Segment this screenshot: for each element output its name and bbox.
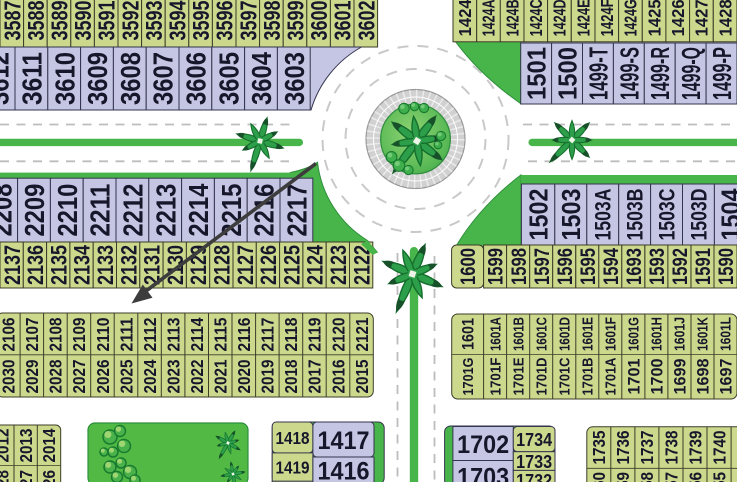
svg-text:1701D: 1701D (534, 357, 551, 395)
svg-text:1701G: 1701G (460, 358, 477, 396)
svg-text:1760: 1760 (589, 472, 609, 482)
svg-text:1700: 1700 (648, 359, 667, 395)
svg-text:1503B: 1503B (623, 189, 648, 241)
svg-text:1732: 1732 (516, 471, 552, 482)
svg-text:1693: 1693 (623, 248, 646, 285)
svg-text:2027: 2027 (16, 470, 36, 482)
svg-text:1592: 1592 (669, 248, 692, 285)
svg-text:1424G: 1424G (621, 0, 641, 36)
svg-text:1424D: 1424D (550, 0, 570, 36)
svg-text:1499-R: 1499-R (645, 47, 675, 100)
svg-text:2017: 2017 (305, 360, 325, 394)
svg-text:3593: 3593 (141, 1, 167, 41)
svg-text:1601L: 1601L (719, 317, 735, 351)
svg-text:1596: 1596 (554, 248, 577, 285)
svg-text:3611: 3611 (16, 52, 47, 105)
svg-text:2128: 2128 (210, 245, 235, 285)
svg-text:1593: 1593 (646, 248, 669, 285)
svg-text:1738: 1738 (661, 430, 681, 464)
svg-text:1735: 1735 (589, 430, 609, 464)
svg-text:3605: 3605 (213, 52, 244, 105)
svg-text:2114: 2114 (187, 317, 207, 351)
svg-text:2023: 2023 (163, 359, 183, 393)
svg-text:2019: 2019 (258, 359, 278, 393)
svg-text:1701: 1701 (625, 359, 644, 395)
svg-text:1501: 1501 (522, 47, 552, 100)
svg-text:2132: 2132 (116, 245, 141, 285)
svg-text:2015: 2015 (352, 359, 372, 393)
svg-text:1756: 1756 (685, 472, 705, 482)
svg-text:1754: 1754 (733, 472, 737, 482)
svg-text:1499-S: 1499-S (614, 47, 644, 100)
svg-text:2028: 2028 (46, 359, 66, 393)
svg-text:1701A: 1701A (603, 357, 620, 395)
svg-text:2115: 2115 (211, 317, 231, 351)
svg-text:1503A: 1503A (591, 188, 616, 240)
svg-text:2025: 2025 (116, 359, 136, 393)
svg-text:1500: 1500 (552, 47, 582, 100)
svg-text:1601F: 1601F (604, 317, 620, 351)
svg-text:3592: 3592 (117, 1, 143, 41)
svg-text:2021: 2021 (211, 359, 231, 393)
svg-text:1499-Q: 1499-Q (676, 47, 706, 100)
svg-text:2130: 2130 (163, 245, 188, 285)
svg-text:1416: 1416 (318, 458, 370, 482)
svg-text:2116: 2116 (234, 317, 254, 351)
svg-text:2135: 2135 (46, 245, 71, 285)
svg-text:1599: 1599 (485, 248, 508, 285)
svg-text:2111: 2111 (116, 317, 136, 351)
svg-text:2110: 2110 (93, 317, 113, 351)
svg-text:2117: 2117 (258, 318, 278, 352)
svg-text:2022: 2022 (187, 359, 207, 393)
svg-text:2118: 2118 (281, 317, 301, 351)
svg-text:2210: 2210 (52, 184, 83, 237)
svg-text:3590: 3590 (70, 1, 96, 41)
svg-text:2012: 2012 (0, 428, 13, 462)
svg-text:1595: 1595 (577, 248, 600, 285)
svg-text:2107: 2107 (22, 318, 42, 352)
svg-text:2214: 2214 (183, 183, 214, 236)
svg-text:1601A: 1601A (488, 317, 504, 351)
svg-text:1594: 1594 (600, 248, 623, 285)
svg-text:1600: 1600 (457, 248, 480, 285)
svg-text:2106: 2106 (0, 317, 19, 351)
svg-text:1424E: 1424E (573, 0, 593, 36)
svg-text:1601D: 1601D (557, 317, 573, 351)
svg-text:1736: 1736 (613, 430, 633, 464)
svg-text:1703: 1703 (457, 464, 509, 482)
svg-text:2029: 2029 (22, 359, 42, 393)
svg-text:1424F: 1424F (597, 0, 617, 36)
svg-text:2120: 2120 (328, 317, 348, 351)
svg-text:3607: 3607 (148, 52, 179, 105)
svg-text:1701F: 1701F (488, 358, 505, 396)
svg-text:1503: 1503 (556, 189, 586, 241)
svg-text:1734: 1734 (516, 430, 552, 450)
svg-text:2123: 2123 (326, 245, 351, 285)
svg-text:2018: 2018 (281, 359, 301, 393)
svg-text:1503C: 1503C (654, 188, 679, 240)
svg-text:1499-P: 1499-P (707, 47, 737, 100)
svg-text:3591: 3591 (94, 1, 120, 41)
svg-text:2013: 2013 (16, 428, 36, 462)
svg-text:2136: 2136 (23, 245, 48, 285)
svg-text:2124: 2124 (303, 245, 328, 285)
svg-text:2121: 2121 (352, 317, 372, 351)
svg-text:3603: 3603 (279, 52, 310, 105)
svg-text:1591: 1591 (692, 248, 715, 285)
svg-text:3587: 3587 (0, 1, 25, 41)
svg-text:1424B: 1424B (502, 0, 522, 36)
svg-text:2212: 2212 (117, 184, 148, 237)
svg-text:1418: 1418 (276, 428, 310, 448)
svg-text:1424A: 1424A (479, 0, 499, 36)
svg-text:2016: 2016 (328, 359, 348, 393)
svg-text:3595: 3595 (188, 1, 214, 41)
svg-text:1417: 1417 (318, 427, 370, 455)
svg-text:1601J: 1601J (673, 317, 689, 351)
svg-text:1737: 1737 (637, 431, 657, 465)
svg-text:1598: 1598 (508, 248, 531, 285)
svg-text:1601C: 1601C (534, 317, 550, 351)
svg-text:2020: 2020 (234, 359, 254, 393)
svg-text:3610: 3610 (49, 52, 80, 105)
svg-text:2137: 2137 (0, 245, 25, 285)
svg-text:3596: 3596 (212, 1, 238, 41)
svg-text:2014: 2014 (39, 428, 59, 462)
svg-text:2108: 2108 (46, 317, 66, 351)
svg-text:2209: 2209 (19, 184, 50, 237)
svg-text:1601B: 1601B (511, 317, 527, 351)
svg-text:1601E: 1601E (581, 317, 597, 351)
svg-text:3589: 3589 (46, 1, 72, 41)
svg-text:3598: 3598 (259, 1, 285, 41)
svg-text:1427: 1427 (692, 0, 712, 36)
svg-text:2109: 2109 (69, 317, 89, 351)
svg-text:1419: 1419 (276, 457, 310, 477)
svg-text:1597: 1597 (531, 248, 554, 285)
svg-text:3604: 3604 (246, 52, 277, 105)
svg-text:3602: 3602 (353, 1, 379, 41)
svg-text:3600: 3600 (306, 1, 332, 41)
svg-text:2126: 2126 (256, 245, 281, 285)
svg-text:1701C: 1701C (557, 357, 574, 395)
svg-text:3594: 3594 (164, 1, 190, 41)
svg-text:1758: 1758 (637, 472, 657, 482)
svg-text:1590: 1590 (715, 248, 737, 285)
svg-text:2208: 2208 (0, 184, 17, 237)
svg-text:1741: 1741 (733, 430, 737, 464)
svg-text:1503D: 1503D (686, 189, 711, 241)
svg-text:1757: 1757 (661, 472, 681, 482)
svg-text:1425: 1425 (644, 0, 664, 36)
svg-text:2119: 2119 (305, 317, 325, 351)
svg-text:2030: 2030 (0, 359, 19, 393)
svg-text:1601K: 1601K (696, 317, 712, 351)
svg-text:3597: 3597 (235, 1, 261, 41)
svg-text:1698: 1698 (694, 359, 713, 395)
svg-text:1739: 1739 (685, 430, 705, 464)
svg-text:1424: 1424 (455, 0, 475, 36)
svg-text:1740: 1740 (709, 430, 729, 464)
svg-text:3588: 3588 (23, 1, 49, 41)
svg-text:2026: 2026 (39, 470, 59, 482)
svg-text:1504: 1504 (716, 188, 737, 240)
svg-text:2134: 2134 (70, 245, 95, 285)
svg-text:2133: 2133 (93, 245, 118, 285)
svg-text:3606: 3606 (180, 52, 211, 105)
svg-text:1699: 1699 (671, 359, 690, 395)
svg-text:2113: 2113 (163, 317, 183, 351)
svg-text:2027: 2027 (69, 360, 89, 394)
svg-text:1755: 1755 (709, 472, 729, 482)
svg-text:1701E: 1701E (511, 358, 528, 396)
svg-text:1701B: 1701B (580, 357, 597, 395)
svg-text:2213: 2213 (150, 184, 181, 237)
svg-text:2125: 2125 (279, 245, 304, 285)
svg-text:1428: 1428 (715, 0, 735, 36)
svg-text:1502: 1502 (523, 189, 553, 241)
svg-text:1601G: 1601G (627, 317, 643, 351)
svg-text:2026: 2026 (93, 359, 113, 393)
svg-text:1499-T: 1499-T (583, 47, 613, 100)
svg-text:2211: 2211 (85, 184, 116, 237)
svg-text:2217: 2217 (281, 184, 312, 237)
svg-text:1426: 1426 (668, 0, 688, 36)
svg-text:1697: 1697 (717, 359, 736, 395)
svg-text:2024: 2024 (140, 359, 160, 393)
svg-text:1733: 1733 (516, 452, 552, 472)
svg-text:2112: 2112 (140, 317, 160, 351)
svg-text:3601: 3601 (330, 1, 356, 41)
svg-text:3608: 3608 (115, 52, 146, 105)
svg-text:1601: 1601 (459, 318, 478, 350)
svg-text:1601H: 1601H (650, 317, 666, 351)
svg-text:2028: 2028 (0, 470, 13, 482)
svg-text:1702: 1702 (457, 431, 509, 459)
svg-text:1759: 1759 (613, 472, 633, 482)
svg-text:3612: 3612 (0, 52, 15, 105)
svg-text:1424C: 1424C (526, 0, 546, 36)
svg-text:3609: 3609 (82, 52, 113, 105)
svg-text:3599: 3599 (282, 1, 308, 41)
svg-text:2127: 2127 (233, 245, 258, 285)
